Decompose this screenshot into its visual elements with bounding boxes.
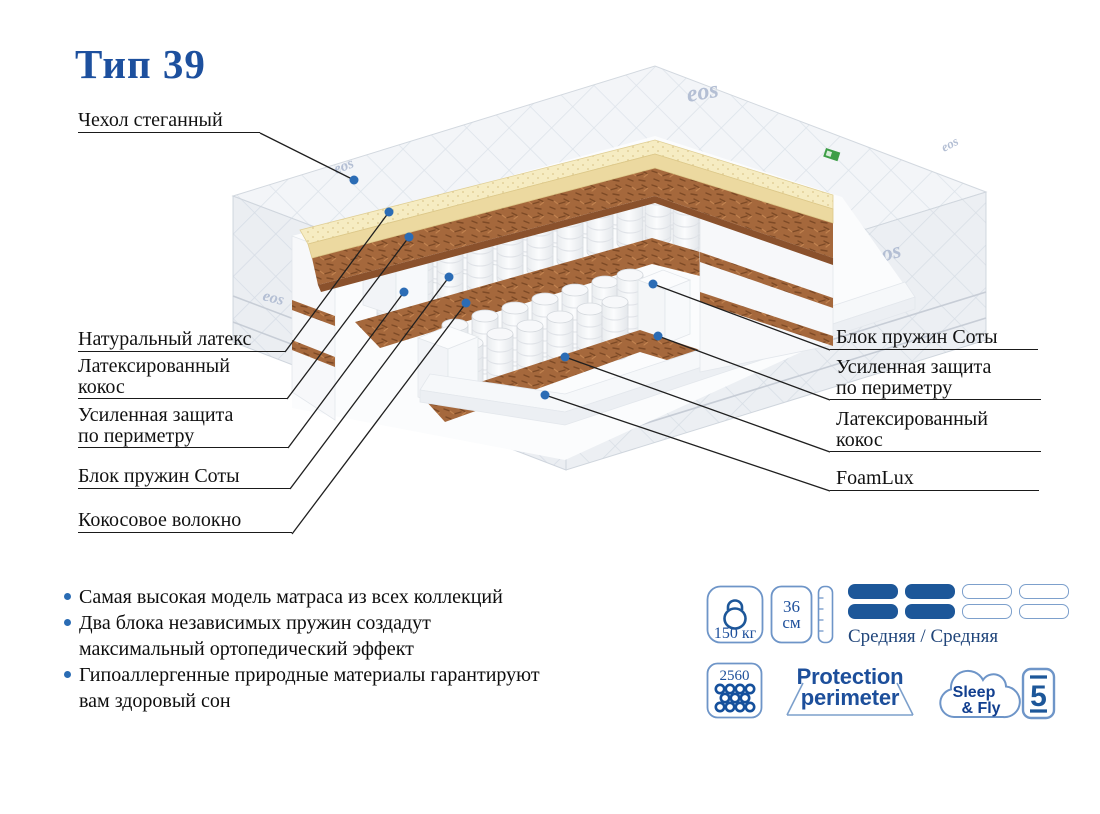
firmness-indicator bbox=[848, 584, 1070, 624]
firmness-label: Средняя / Средняя bbox=[848, 626, 998, 648]
product-sheet: Тип 39 bbox=[0, 0, 1100, 814]
svg-text:5: 5 bbox=[1030, 680, 1047, 713]
svg-text:см: см bbox=[782, 613, 801, 632]
feature-list: Самая высокая модель матраса из всех кол… bbox=[62, 584, 622, 714]
svg-text:eos: eos bbox=[938, 133, 960, 154]
svg-text:& Fly: & Fly bbox=[961, 700, 1000, 717]
label-springs-left: Блок пружин Соты bbox=[78, 466, 290, 489]
label-natural-latex: Натуральный латекс bbox=[78, 329, 285, 352]
firmness-pill bbox=[848, 584, 898, 599]
protection-line1: Protection bbox=[775, 666, 925, 687]
svg-text:eos: eos bbox=[685, 77, 721, 108]
springs-count-badge: 2560 bbox=[706, 662, 763, 719]
mattress-height-badge: 36 см bbox=[770, 585, 813, 644]
firmness-pill bbox=[1019, 604, 1069, 619]
label-coconut-fiber: Кокосовое волокно bbox=[78, 510, 292, 533]
firmness-pill bbox=[1019, 584, 1069, 599]
warranty-years-badge: 5 bbox=[1021, 667, 1056, 720]
ruler-icon bbox=[817, 585, 834, 644]
feature-item: Самая высокая модель матраса из всех кол… bbox=[62, 584, 622, 610]
svg-text:150 кг: 150 кг bbox=[714, 625, 757, 642]
firmness-pill bbox=[962, 604, 1012, 619]
svg-text:Sleep: Sleep bbox=[953, 684, 996, 701]
label-foamlux: FoamLux bbox=[830, 468, 1039, 491]
svg-text:2560: 2560 bbox=[720, 668, 750, 684]
protection-perimeter-badge: Protection perimeter bbox=[775, 666, 925, 708]
label-cover: Чехол стеганный bbox=[78, 110, 260, 133]
label-latex-coir-left: Латексированный кокос bbox=[78, 356, 287, 399]
protection-line2: perimeter bbox=[775, 687, 925, 708]
feature-item: Два блока независимых пружин создадут ма… bbox=[62, 610, 622, 662]
max-weight-badge: 150 кг bbox=[706, 585, 764, 644]
label-perimeter-right: Усиленная защита по периметру bbox=[830, 357, 1041, 400]
label-perimeter-left: Усиленная защита по периметру bbox=[78, 405, 288, 448]
firmness-pill bbox=[848, 604, 898, 619]
feature-item: Гипоаллергенные природные материалы гара… bbox=[62, 662, 622, 714]
firmness-pill bbox=[962, 584, 1012, 599]
firmness-pill bbox=[905, 584, 955, 599]
firmness-pill bbox=[905, 604, 955, 619]
label-latex-coir-right: Латексированный кокос bbox=[830, 409, 1041, 452]
label-springs-right: Блок пружин Соты bbox=[830, 327, 1038, 350]
sleep-and-fly-logo: Sleep & Fly bbox=[928, 664, 1022, 726]
